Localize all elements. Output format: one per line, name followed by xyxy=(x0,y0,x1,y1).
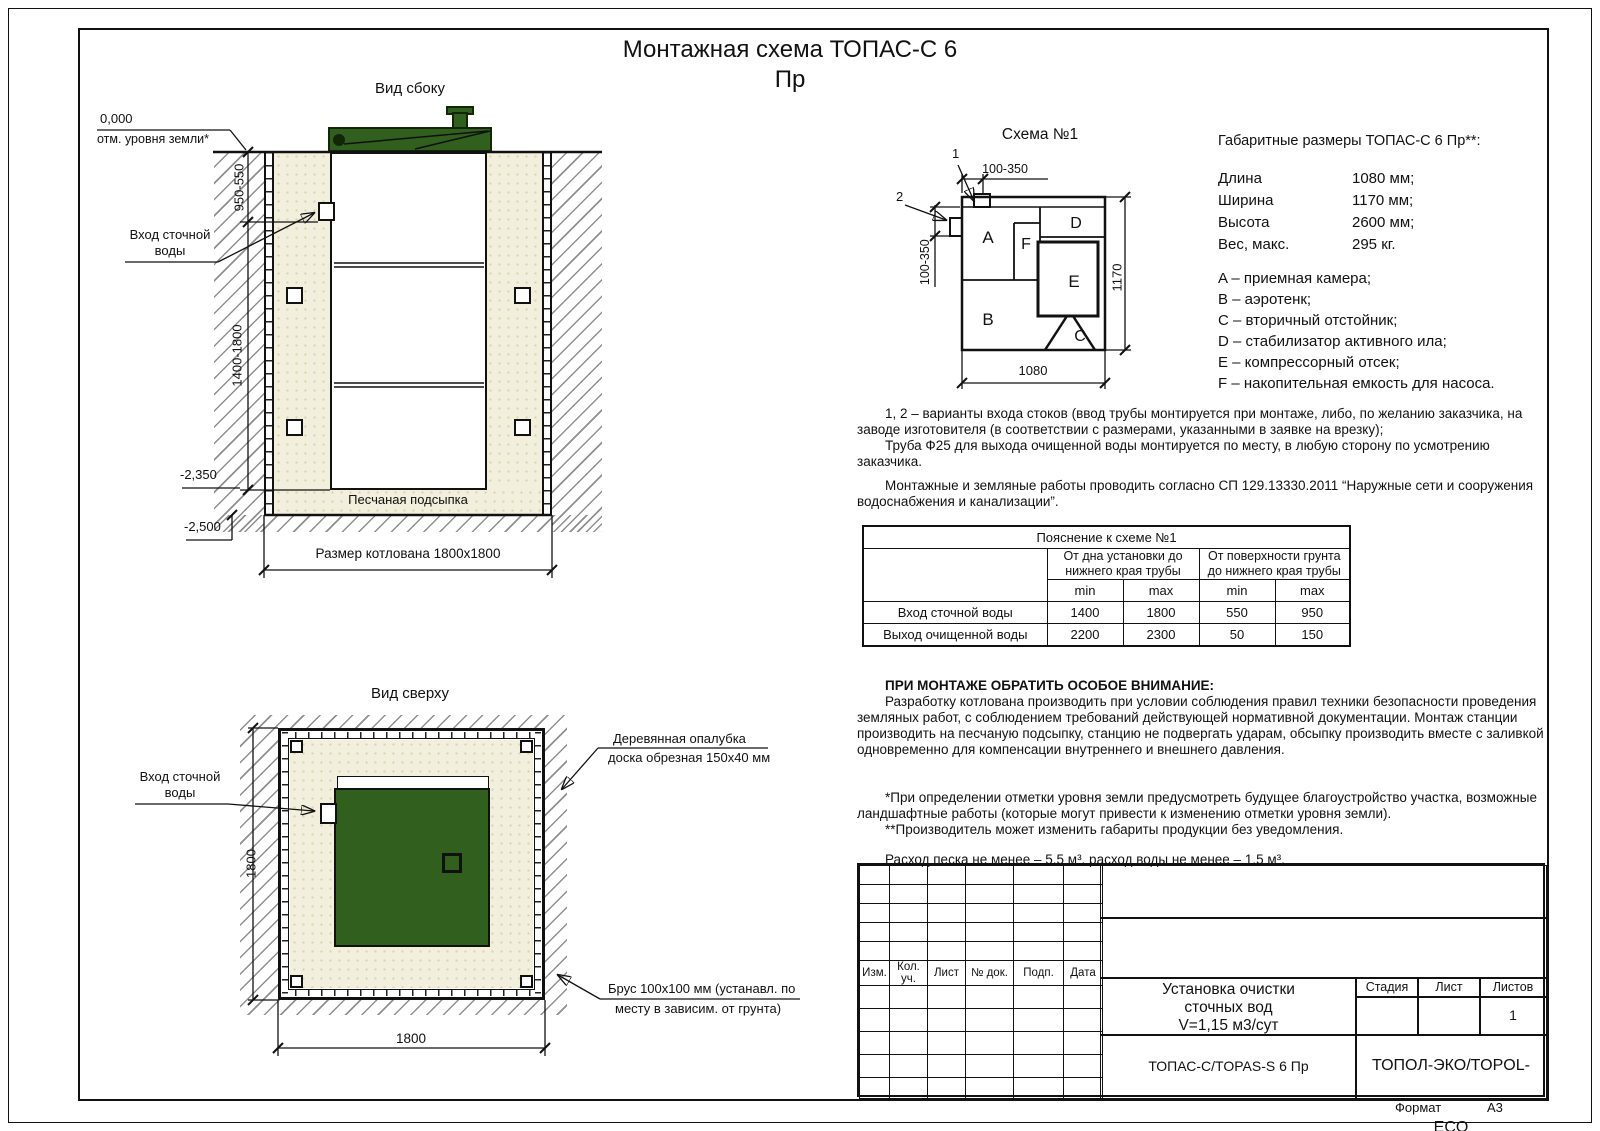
legend-item: E – компрессорный отсек; xyxy=(1218,354,1400,371)
legend-item: A – приемная камера; xyxy=(1218,270,1371,287)
table-row: Вход сточной воды 1400 1800 550 950 xyxy=(863,602,1350,624)
table-title: Пояснение к схеме №1 xyxy=(863,526,1350,549)
cell: 150 xyxy=(1275,624,1350,647)
rev-header: Подп. xyxy=(1014,961,1064,986)
schema-marker-2: 2 xyxy=(896,190,903,205)
revision-header-row: Изм. Кол. уч. Лист № док. Подп. Дата xyxy=(860,961,1103,986)
schema-dim-left: 100-350 xyxy=(918,222,932,302)
beam-label-line1: Брус 100х100 мм (устанавл. по xyxy=(608,982,795,997)
sheet-header: Лист xyxy=(1417,977,1481,998)
sand-bedding-label: Песчаная подсыпка xyxy=(328,493,488,508)
dim-1400-1800: 1400-1800 xyxy=(231,310,246,400)
spec-value: 2600 мм; xyxy=(1352,214,1414,231)
dim-1800-vertical: 1800 xyxy=(245,818,260,908)
rev-header: Кол. уч. xyxy=(890,961,928,986)
cell: 50 xyxy=(1199,624,1275,647)
note-works: Монтажные и земляные работы проводить со… xyxy=(857,478,1547,510)
sheets-header: Листов xyxy=(1479,977,1547,998)
top-view: Вид сверху Вход сточной воды 1800 1800 Д… xyxy=(100,690,840,1070)
format-value: А3 xyxy=(1487,1101,1503,1116)
compartment-f: F xyxy=(1016,236,1036,254)
inlet-label-line2: воды xyxy=(130,786,230,801)
model-cell: ТОПАС-С/TOPAS-S 6 Пр xyxy=(1100,1034,1357,1099)
compartment-c: C xyxy=(1070,328,1090,346)
group1-line2: нижнего края трубы xyxy=(1050,564,1197,579)
row-label: Выход очищенной воды xyxy=(863,624,1047,647)
compartment-b: B xyxy=(978,310,998,330)
rev-header: Лист xyxy=(928,961,966,986)
footnote: *При определении отметки уровня земли пр… xyxy=(857,790,1547,822)
note-inlet-variants: 1, 2 – варианты входа стоков (ввод трубы… xyxy=(857,406,1547,470)
row-label: Вход сточной воды xyxy=(863,602,1047,624)
stage-value xyxy=(1355,996,1419,1036)
compartment-a: A xyxy=(978,228,998,248)
cell: 550 xyxy=(1199,602,1275,624)
footnotes: *При определении отметки уровня земли пр… xyxy=(857,790,1547,838)
ground-and-pit-lines xyxy=(213,131,602,515)
table-group1: От дна установки до нижнего края трубы xyxy=(1047,549,1199,580)
note-paragraph: Труба Ф25 для выхода очищенной воды монт… xyxy=(857,438,1547,470)
spec-label: Длина xyxy=(1218,170,1262,187)
explanation-table: Пояснение к схеме №1 От дна установки до… xyxy=(862,525,1351,647)
side-view-title: Вид сбоку xyxy=(330,80,490,97)
page-title: Монтажная схема ТОПАС-С 6 xyxy=(440,36,1140,64)
table-row: Выход очищенной воды 2200 2300 50 150 xyxy=(863,624,1350,647)
dimension-lines xyxy=(97,130,557,578)
spec-label: Вес, макс. xyxy=(1218,236,1289,253)
side-view-linework xyxy=(80,100,620,600)
title-block: Изм. Кол. уч. Лист № док. Подп. Дата Уст… xyxy=(857,863,1545,1097)
pit-size-label: Размер котлована 1800х1800 xyxy=(278,546,538,562)
attention-body: Разработку котлована производить при усл… xyxy=(857,694,1547,758)
mark-2500: -2,500 xyxy=(184,520,221,535)
company-cell: ТОПОЛ-ЭКО/TOPOL-ECO xyxy=(1355,1034,1547,1099)
note-paragraph: 1, 2 – варианты входа стоков (ввод трубы… xyxy=(857,406,1547,438)
cell: 950 xyxy=(1275,602,1350,624)
cell: 1800 xyxy=(1123,602,1199,624)
legend-item: F – накопительная емкость для насоса. xyxy=(1218,375,1495,392)
stage-header: Стадия xyxy=(1355,977,1419,998)
dim-1800-horizontal: 1800 xyxy=(351,1031,471,1047)
revision-grid: Изм. Кол. уч. Лист № док. Подп. Дата xyxy=(859,865,1103,1099)
group2-line2: до нижнего края трубы xyxy=(1202,564,1348,579)
spec-value: 1170 мм; xyxy=(1352,192,1413,209)
table-corner-cell xyxy=(863,549,1047,602)
page-title-line2: Пр xyxy=(440,66,1140,94)
specs-title: Габаритные размеры ТОПАС-С 6 Пр**: xyxy=(1218,133,1481,150)
rev-header: Дата xyxy=(1064,961,1103,986)
max-header: max xyxy=(1123,580,1199,602)
format-label: Формат xyxy=(1395,1101,1441,1116)
inlet-label-line2: воды xyxy=(120,244,220,259)
dimension-lines xyxy=(248,723,550,1056)
leader-lines xyxy=(135,748,800,999)
schema-dim-bottom: 1080 xyxy=(973,364,1093,379)
drawing-sheet: Монтажная схема ТОПАС-С 6 Пр xyxy=(0,0,1600,1131)
beam-label-line2: месту в зависим. от грунта) xyxy=(615,1002,781,1017)
zero-mark-label: отм. уровня земли* xyxy=(97,132,209,146)
schema-dim-right: 1170 xyxy=(1111,237,1126,317)
signature-box-2 xyxy=(1100,917,1547,979)
attention-block: ПРИ МОНТАЖЕ ОБРАТИТЬ ОСОБОЕ ВНИМАНИЕ: Ра… xyxy=(857,678,1547,758)
doc-title-line1: Установка очистки xyxy=(1101,981,1356,999)
footnote: **Производитель может изменить габариты … xyxy=(857,822,1547,838)
inlet-label-line1: Вход сточной xyxy=(120,228,220,243)
max-header: max xyxy=(1275,580,1350,602)
sheets-value: 1 xyxy=(1479,996,1547,1036)
schema-dim-top: 100-350 xyxy=(962,162,1048,176)
doc-title-line3: V=1,15 м3/сут xyxy=(1101,1017,1356,1035)
legend-item: D – стабилизатор активного ила; xyxy=(1218,333,1447,350)
group2-line1: От поверхности грунта xyxy=(1202,549,1348,564)
formwork-label-line2: доска обрезная 150х40 мм xyxy=(608,751,770,766)
sheet-value xyxy=(1417,996,1481,1036)
attention-title: ПРИ МОНТАЖЕ ОБРАТИТЬ ОСОБОЕ ВНИМАНИЕ: xyxy=(857,678,1547,694)
rev-header: Изм. xyxy=(860,961,890,986)
inlet-label-line1: Вход сточной xyxy=(130,770,230,785)
note-paragraph: Монтажные и земляные работы проводить со… xyxy=(857,478,1547,510)
doc-title-cell: Установка очистки сточных вод V=1,15 м3/… xyxy=(1100,977,1357,1036)
spec-value: 1080 мм; xyxy=(1352,170,1414,187)
cell: 1400 xyxy=(1047,602,1123,624)
mark-2350: -2,350 xyxy=(180,468,217,483)
spec-label: Ширина xyxy=(1218,192,1273,209)
doc-title-line2: сточных вод xyxy=(1101,999,1356,1017)
side-view: Вид сбоку 0,000 отм. уровня земли* 950-5… xyxy=(80,100,620,600)
dim-950-550: 950-550 xyxy=(233,147,248,227)
table-group2: От поверхности грунта до нижнего края тр… xyxy=(1199,549,1350,580)
spec-label: Высота xyxy=(1218,214,1270,231)
schema-title: Схема №1 xyxy=(985,126,1095,144)
group1-line1: От дна установки до xyxy=(1050,549,1197,564)
min-header: min xyxy=(1199,580,1275,602)
rev-header: № док. xyxy=(966,961,1014,986)
spec-value: 295 кг. xyxy=(1352,236,1396,253)
legend-item: B – аэротенк; xyxy=(1218,291,1311,308)
cell: 2300 xyxy=(1123,624,1199,647)
legend-item: C – вторичный отстойник; xyxy=(1218,312,1397,329)
cell: 2200 xyxy=(1047,624,1123,647)
formwork-label-line1: Деревянная опалубка xyxy=(613,732,746,747)
zero-mark: 0,000 xyxy=(100,112,133,127)
top-view-title: Вид сверху xyxy=(300,685,520,702)
compartment-e: E xyxy=(1064,272,1084,292)
compartment-d: D xyxy=(1066,215,1086,233)
schema-marker-1: 1 xyxy=(952,147,959,162)
signature-box-1 xyxy=(1100,865,1547,919)
min-header: min xyxy=(1047,580,1123,602)
